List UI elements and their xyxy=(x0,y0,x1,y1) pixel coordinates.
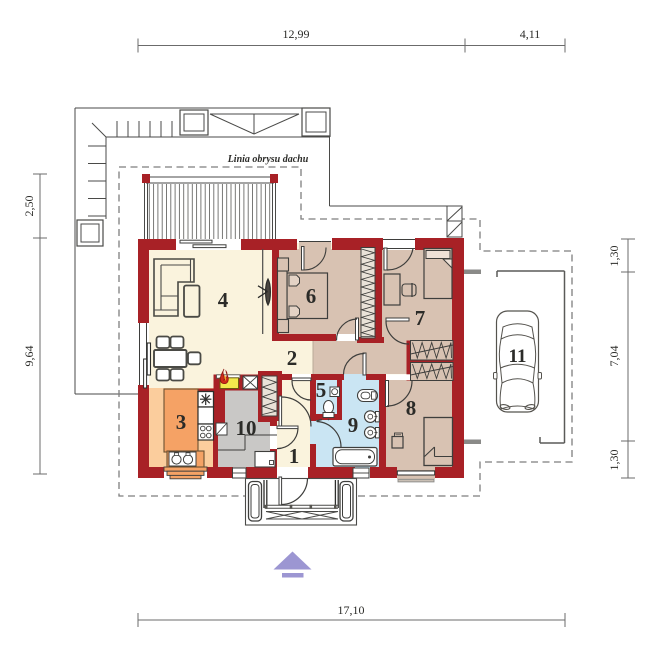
svg-text:17,10: 17,10 xyxy=(338,603,365,617)
svg-text:11: 11 xyxy=(509,346,527,367)
svg-text:1: 1 xyxy=(289,444,300,468)
svg-text:6: 6 xyxy=(306,284,317,308)
svg-text:10: 10 xyxy=(236,416,257,440)
svg-text:Linia obrysu dachu: Linia obrysu dachu xyxy=(227,154,309,165)
svg-text:5: 5 xyxy=(316,378,327,402)
svg-text:8: 8 xyxy=(406,396,417,420)
svg-text:1,30: 1,30 xyxy=(607,450,621,471)
svg-text:2,50: 2,50 xyxy=(22,196,36,217)
svg-text:4: 4 xyxy=(218,288,229,312)
svg-text:7: 7 xyxy=(415,306,426,330)
svg-text:9: 9 xyxy=(348,413,359,437)
svg-text:1,30: 1,30 xyxy=(607,246,621,267)
svg-text:3: 3 xyxy=(176,410,187,434)
svg-text:2: 2 xyxy=(287,346,298,370)
svg-text:9,64: 9,64 xyxy=(22,346,36,367)
svg-text:12,99: 12,99 xyxy=(283,27,310,41)
svg-text:4,11: 4,11 xyxy=(520,27,541,41)
svg-text:7,04: 7,04 xyxy=(607,346,621,367)
